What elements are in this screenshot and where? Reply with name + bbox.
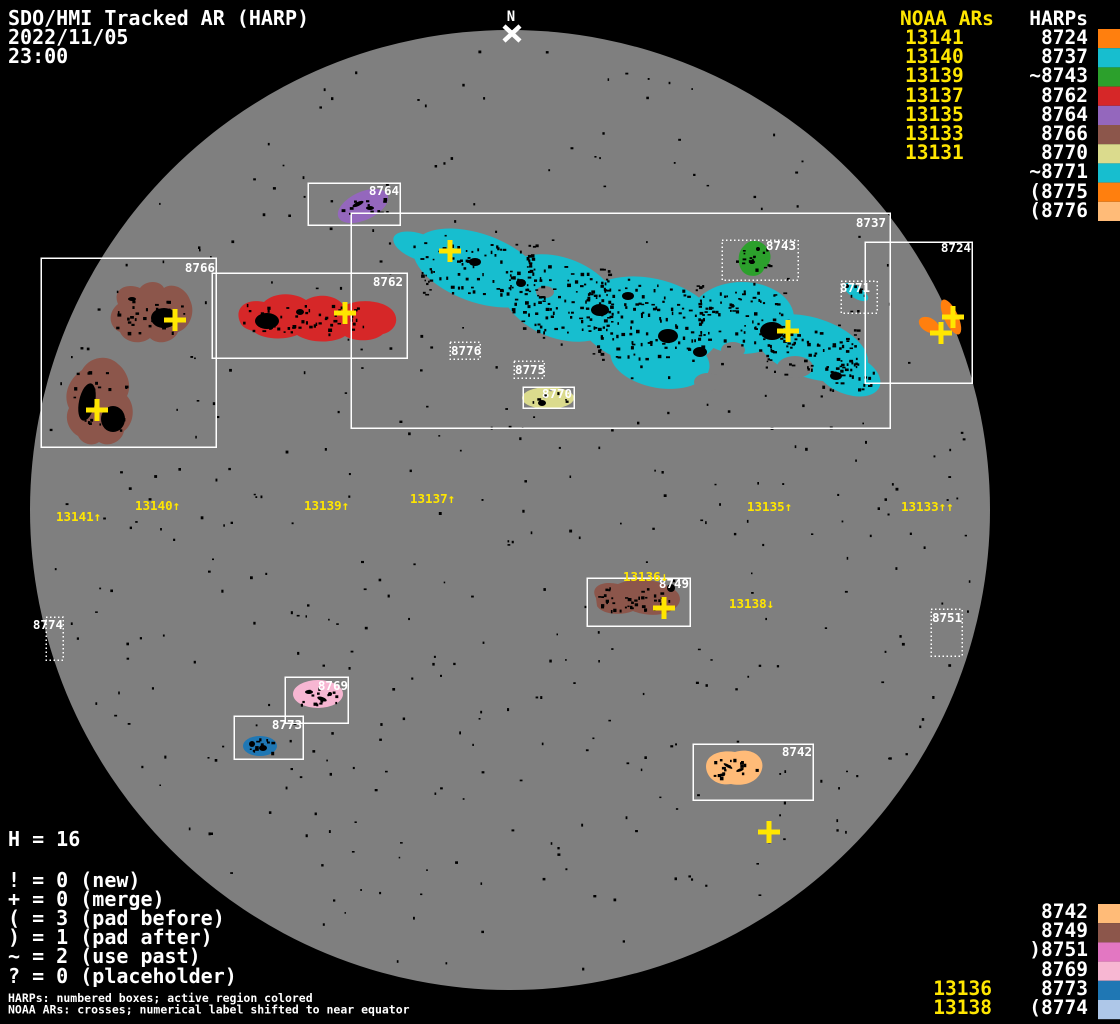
- swatch-8776: [1098, 202, 1120, 221]
- noaa-disk-label: 13140↑: [135, 498, 180, 513]
- harp-label: 8775: [515, 362, 545, 377]
- swatch-8742: [1098, 904, 1120, 923]
- footnote-noaa: NOAA ARs: crosses; numerical label shift…: [8, 1003, 410, 1017]
- harp-label: 8770: [542, 386, 572, 401]
- harp-label: 8773: [272, 717, 302, 732]
- swatch-8766: [1098, 125, 1120, 144]
- swatch-8764: [1098, 106, 1120, 125]
- noaa-disk-label: 13141↑: [56, 509, 101, 524]
- swatch-8775: [1098, 183, 1120, 202]
- harp-legend-column: HARPs 8724 8737 ~8743 8762 8764 8766 877…: [1029, 7, 1088, 222]
- harp-visualization: 8766 8762 8764 8737 8743 8771 8724 8776 …: [0, 0, 1120, 1024]
- noaa-legend-bottom: 13136 13138: [933, 977, 992, 1019]
- swatch-8771: [1098, 163, 1120, 182]
- harp-item: (8774: [1029, 996, 1088, 1019]
- harp-label: 8769: [318, 678, 348, 693]
- north-marker: N: [504, 9, 520, 41]
- noaa-legend-column: NOAA ARs 13141 13140 13139 13137 13135 1…: [900, 7, 994, 164]
- noaa-item: 13138: [933, 996, 992, 1019]
- swatch-8769: [1098, 962, 1120, 981]
- noaa-disk-label: 13137↑: [410, 491, 455, 506]
- swatch-8762: [1098, 87, 1120, 106]
- noaa-disk-label: 13136↓: [623, 569, 668, 584]
- harp-count: H = 16: [8, 827, 80, 851]
- harp-item: (8776: [1029, 199, 1088, 222]
- harp-label: 8764: [369, 183, 399, 198]
- swatch-8773: [1098, 981, 1120, 1000]
- swatch-8749: [1098, 923, 1120, 942]
- harp-label: 8762: [373, 274, 403, 289]
- swatch-8770: [1098, 144, 1120, 163]
- swatch-8751: [1098, 942, 1120, 961]
- footnotes: HARPs: numbered boxes; active region col…: [8, 991, 410, 1017]
- swatch-8724: [1098, 29, 1120, 48]
- time-label: 23:00: [8, 44, 68, 68]
- harp-label: 8751: [932, 610, 962, 625]
- noaa-disk-label: 13133↑↑: [901, 499, 954, 514]
- swatch-8737: [1098, 48, 1120, 67]
- harp-label: 8771: [840, 280, 870, 295]
- harp-label: 8742: [782, 744, 812, 759]
- harp-label: 8724: [941, 240, 971, 255]
- noaa-disk-label: 13135↑: [747, 499, 792, 514]
- swatch-8743: [1098, 67, 1120, 86]
- noaa-disk-label: 13138↓: [729, 596, 774, 611]
- harp-label: 8766: [185, 260, 215, 275]
- swatch-8774: [1098, 1000, 1120, 1019]
- harp-label: 8774: [33, 617, 63, 632]
- flag-line: ? = 0 (placeholder): [8, 964, 237, 988]
- region-8742: [706, 751, 762, 785]
- harp-label: 8776: [451, 343, 481, 358]
- harp-legend-bottom: 8742 8749 )8751 8769 8773 (8774: [1029, 900, 1088, 1019]
- title-block: SDO/HMI Tracked AR (HARP) 2022/11/05 23:…: [8, 6, 309, 68]
- harp-label: 8737: [856, 215, 886, 230]
- noaa-disk-label: 13139↑: [304, 498, 349, 513]
- north-label: N: [507, 9, 515, 25]
- harp-color-swatches-top: [1098, 29, 1120, 221]
- harp-label: 8743: [766, 238, 796, 253]
- harp-color-swatches-bottom: [1098, 904, 1120, 1019]
- solar-disk-scene: 8766 8762 8764 8737 8743 8771 8724 8776 …: [0, 0, 1120, 1024]
- noaa-item: 13131: [905, 141, 964, 164]
